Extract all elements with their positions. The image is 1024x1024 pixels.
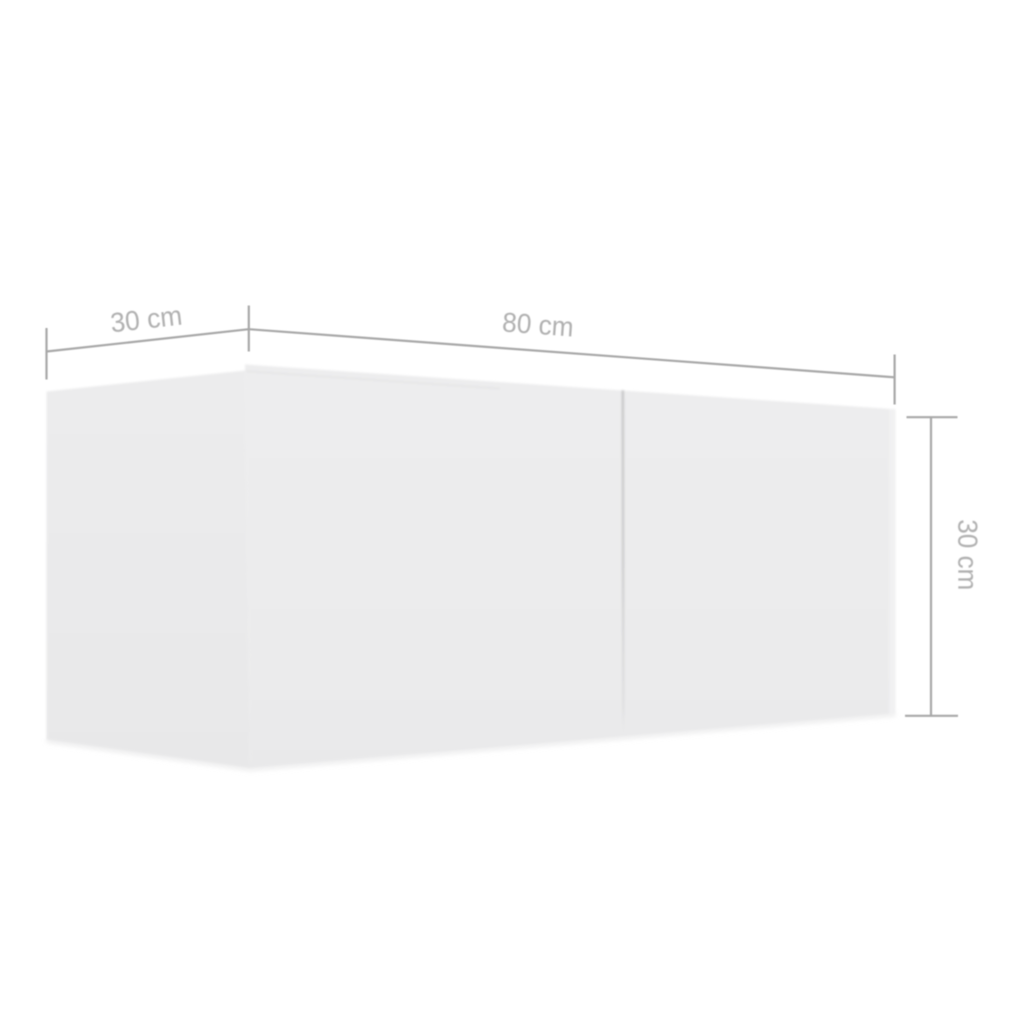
svg-text:80 cm: 80 cm [501,306,575,342]
svg-text:30 cm: 30 cm [109,299,184,338]
svg-text:30 cm: 30 cm [953,519,984,590]
